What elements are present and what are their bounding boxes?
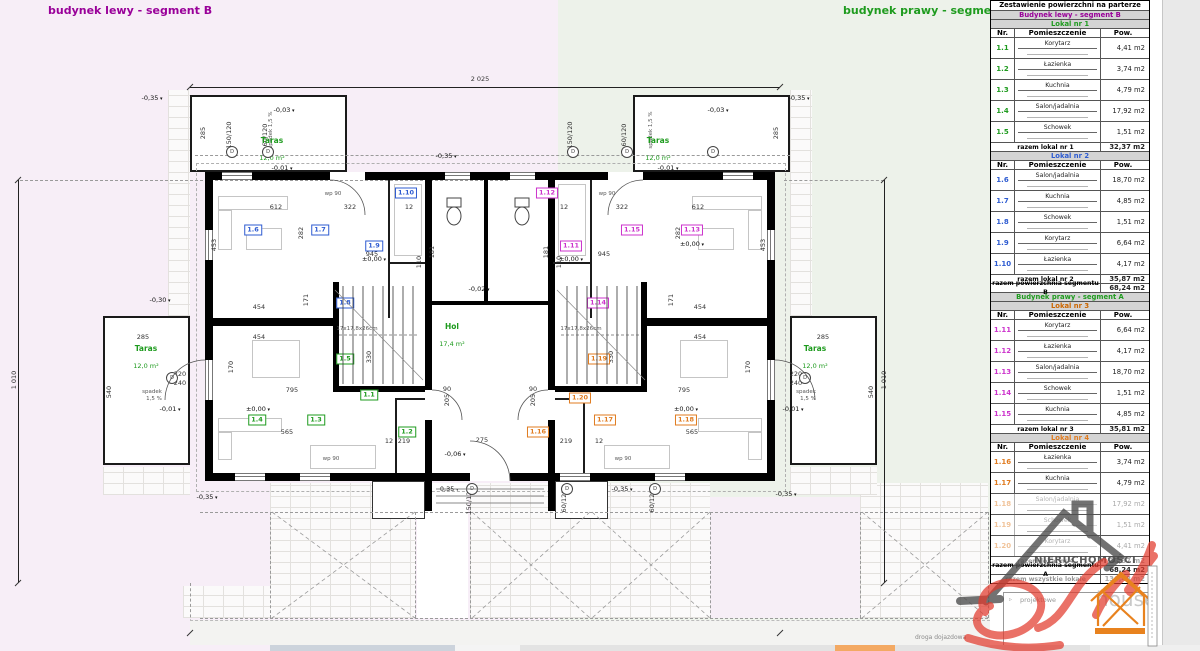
room-name-cell: Łazienka [1015,59,1101,79]
plan-path [608,180,643,215]
plan-line [15,177,21,183]
room-name: Salon/jadalnia [1018,363,1098,373]
room-subline [1027,223,1088,229]
sum-area: 32,37 m2 [1101,557,1149,565]
room-name-cell: Korytarz [1015,536,1101,556]
sum-label: razem powierzchnia segmentu B [991,284,1101,292]
room-subline [1027,415,1088,421]
table-row: 1.4Salon/jadalnia17,92 m2 [991,100,1149,121]
table-row: 1.13Salon/jadalnia18,70 m2 [991,361,1149,382]
stamp-text: projektowe [1020,596,1056,604]
plan-line [187,630,193,636]
room-subline [1027,373,1088,379]
table-row: 1.6Salon/jadalnia18,70 m2 [991,169,1149,190]
room-area: 4,85 m2 [1101,191,1149,211]
room-area: 4,79 m2 [1101,80,1149,100]
room-name-cell: Łazienka [1015,341,1101,361]
col-header-area: Pow. [1101,161,1149,169]
table-row: 1.7Kuchnia4,85 m2 [991,190,1149,211]
table-row: 1.11Korytarz6,64 m2 [991,319,1149,340]
plan-path [470,441,510,481]
room-nr: 1.17 [991,473,1015,493]
room-name: Kuchnia [1018,192,1098,202]
room-nr: 1.6 [991,170,1015,190]
sum-area: 35,87 m2 [1101,275,1149,283]
sum-area: 68,24 m2 [1101,284,1149,292]
room-subline [1027,265,1088,271]
plan-line [881,580,887,586]
table-row: Lokal nr 2 [991,151,1149,160]
room-name: Schowek [1018,123,1098,133]
plan-line [272,512,415,618]
plan-path [165,360,205,400]
room-nr: 1.18 [991,494,1015,514]
room-nr: 1.5 [991,122,1015,142]
room-subline [1027,133,1088,139]
table-row: 1.18Salon/jadalnia17,92 m2 [991,493,1149,514]
room-area: 4,79 m2 [1101,473,1149,493]
room-name-cell: Schowek [1015,515,1101,535]
driveway-label: droga dojazdowa [915,634,966,641]
room-nr: 1.14 [991,383,1015,403]
plan-line [881,177,887,183]
table-row: Nr.PomieszczeniePow. [991,310,1149,319]
table-row: 1.12Łazienka4,17 m2 [991,340,1149,361]
room-area: 1,51 m2 [1101,515,1149,535]
room-nr: 1.3 [991,80,1015,100]
left-building-title: budynek lewy - segment B [48,4,212,17]
room-name: Korytarz [1018,321,1098,331]
room-name: Łazienka [1018,60,1098,70]
room-subline [1027,394,1088,400]
table-row: 1.15Kuchnia4,85 m2 [991,403,1149,424]
room-subline [1027,505,1088,511]
col-header-nr: Nr. [991,29,1015,37]
stamp-box: ▹ projektowe [1003,592,1151,647]
room-area: 1,51 m2 [1101,212,1149,232]
plan-line [15,580,21,586]
bottom-edge-strip [0,645,270,651]
plan-line [187,84,193,90]
table-row: Nr.PomieszczeniePow. [991,28,1149,37]
toilet-tank [515,198,529,207]
room-name-cell: Salon/jadalnia [1015,362,1101,382]
room-subline [1027,526,1088,532]
room-nr: 1.16 [991,452,1015,472]
sum-area: 32,37 m2 [1101,143,1149,151]
table-row: 1.20Korytarz4,41 m2 [991,535,1149,556]
room-name-cell: Korytarz [1015,38,1101,58]
room-subline [1027,547,1088,553]
room-subline [1027,112,1088,118]
plan-line [777,630,783,636]
room-name-cell: Schowek [1015,383,1101,403]
room-name: Korytarz [1018,39,1098,49]
table-row: Nr.PomieszczeniePow. [991,442,1149,451]
room-nr: 1.2 [991,59,1015,79]
room-name: Łazienka [1018,453,1098,463]
room-area: 3,74 m2 [1101,59,1149,79]
table-row: 1.10Łazienka4,17 m2 [991,253,1149,274]
room-subline [1027,352,1088,358]
room-nr: 1.11 [991,320,1015,340]
room-area: 6,64 m2 [1101,320,1149,340]
table-row: razem lokal nr 335,81 m2 [991,424,1149,433]
bottom-edge-strip [520,645,835,651]
room-name: Kuchnia [1018,474,1098,484]
room-area: 17,92 m2 [1101,101,1149,121]
table-row: razem powierzchnia segmentu A68,24 m2 [991,565,1149,574]
toilet-icon [515,207,529,225]
room-name-cell: Salon/jadalnia [1015,101,1101,121]
toilet-icon [447,207,461,225]
bottom-edge-strip [895,645,1090,651]
room-nr: 1.20 [991,536,1015,556]
sum-area: 136,48 m2 [1101,575,1149,583]
room-area: 4,85 m2 [1101,404,1149,424]
room-name: Łazienka [1018,342,1098,352]
plan-path [518,390,548,420]
room-subline [1027,331,1088,337]
table-row: 1.9Korytarz6,64 m2 [991,232,1149,253]
sum-label: razem wszystkie lokale [991,575,1101,583]
plan-line [272,512,415,618]
table-row: 1.8Schowek1,51 m2 [991,211,1149,232]
room-nr: 1.8 [991,212,1015,232]
table-row: Lokal nr 4 [991,433,1149,442]
room-name-cell: Kuchnia [1015,404,1101,424]
table-row: 1.5Schowek1,51 m2 [991,121,1149,142]
sum-label: razem powierzchnia segmentu A [991,566,1101,574]
room-area: 3,74 m2 [1101,452,1149,472]
room-area: 4,41 m2 [1101,536,1149,556]
room-nr: 1.9 [991,233,1015,253]
table-row: 1.17Kuchnia4,79 m2 [991,472,1149,493]
room-name-cell: Korytarz [1015,320,1101,340]
sum-label: razem lokal nr 1 [991,143,1101,151]
sum-area: 68,24 m2 [1101,566,1149,574]
room-name: Schowek [1018,213,1098,223]
table-row: 1.16Łazienka3,74 m2 [991,451,1149,472]
room-name-cell: Kuchnia [1015,191,1101,211]
bottom-edge-strip [1090,645,1200,651]
col-header-room: Pomieszczenie [1015,311,1101,319]
room-subline [1027,181,1088,187]
col-header-area: Pow. [1101,311,1149,319]
col-header-nr: Nr. [991,311,1015,319]
room-name-cell: Łazienka [1015,452,1101,472]
room-subline [1027,91,1088,97]
stamp-triangle-icon: ▹ [1009,596,1012,603]
room-name: Kuchnia [1018,81,1098,91]
room-nr: 1.15 [991,404,1015,424]
table-row: razem powierzchnia segmentu B68,24 m2 [991,283,1149,292]
room-name-cell: Kuchnia [1015,80,1101,100]
room-subline [1027,244,1088,250]
area-summary-table: Zestawienie powierzchni na parterzeBudyn… [990,0,1150,584]
room-subline [1027,463,1088,469]
room-area: 4,41 m2 [1101,38,1149,58]
toilet-tank [447,198,461,207]
plan-path [775,360,815,400]
table-row: 1.1Korytarz4,41 m2 [991,37,1149,58]
room-area: 4,17 m2 [1101,341,1149,361]
table-row: Nr.PomieszczeniePow. [991,160,1149,169]
col-header-nr: Nr. [991,161,1015,169]
table-row: Budynek lewy - segment B [991,10,1149,19]
col-header-area: Pow. [1101,443,1149,451]
table-row: 1.3Kuchnia4,79 m2 [991,79,1149,100]
room-name: Schowek [1018,384,1098,394]
room-nr: 1.12 [991,341,1015,361]
room-nr: 1.10 [991,254,1015,274]
table-row: 1.2Łazienka3,74 m2 [991,58,1149,79]
room-subline [1027,202,1088,208]
room-name: Łazienka [1018,255,1098,265]
room-name: Korytarz [1018,234,1098,244]
table-row: 1.14Schowek1,51 m2 [991,382,1149,403]
table-row: 1.19Schowek1,51 m2 [991,514,1149,535]
room-nr: 1.13 [991,362,1015,382]
table-row: razem wszystkie lokale136,48 m2 [991,574,1149,583]
table-row: Lokal nr 3 [991,301,1149,310]
room-name: Salon/jadalnia [1018,102,1098,112]
room-name-cell: Schowek [1015,122,1101,142]
col-header-room: Pomieszczenie [1015,29,1101,37]
plan-path [330,180,365,215]
room-name-cell: Kuchnia [1015,473,1101,493]
bottom-edge-strip [270,645,455,651]
room-area: 6,64 m2 [1101,233,1149,253]
sum-area: 35,81 m2 [1101,425,1149,433]
room-name: Schowek [1018,516,1098,526]
room-subline [1027,484,1088,490]
bottom-edge-strip [455,645,520,651]
room-name: Salon/jadalnia [1018,171,1098,181]
room-name-cell: Salon/jadalnia [1015,170,1101,190]
room-nr: 1.4 [991,101,1015,121]
room-area: 17,92 m2 [1101,494,1149,514]
room-nr: 1.7 [991,191,1015,211]
room-subline [1027,70,1088,76]
room-area: 1,51 m2 [1101,122,1149,142]
room-name: Salon/jadalnia [1018,495,1098,505]
room-name-cell: Korytarz [1015,233,1101,253]
table-row: razem lokal nr 132,37 m2 [991,142,1149,151]
col-header-room: Pomieszczenie [1015,161,1101,169]
plan-path [432,390,462,420]
col-header-area: Pow. [1101,29,1149,37]
table-row: Zestawienie powierzchni na parterze [991,1,1149,10]
col-header-nr: Nr. [991,443,1015,451]
room-nr: 1.19 [991,515,1015,535]
room-name: Korytarz [1018,537,1098,547]
room-area: 18,70 m2 [1101,362,1149,382]
room-name-cell: Salon/jadalnia [1015,494,1101,514]
col-header-room: Pomieszczenie [1015,443,1101,451]
room-name-cell: Łazienka [1015,254,1101,274]
sum-label: razem lokal nr 3 [991,425,1101,433]
room-area: 1,51 m2 [1101,383,1149,403]
table-row: Lokal nr 1 [991,19,1149,28]
plan-line [777,84,783,90]
room-area: 4,17 m2 [1101,254,1149,274]
room-name-cell: Schowek [1015,212,1101,232]
room-area: 18,70 m2 [1101,170,1149,190]
room-subline [1027,49,1088,55]
room-nr: 1.1 [991,38,1015,58]
room-name: Kuchnia [1018,405,1098,415]
bottom-edge-strip [835,645,895,651]
